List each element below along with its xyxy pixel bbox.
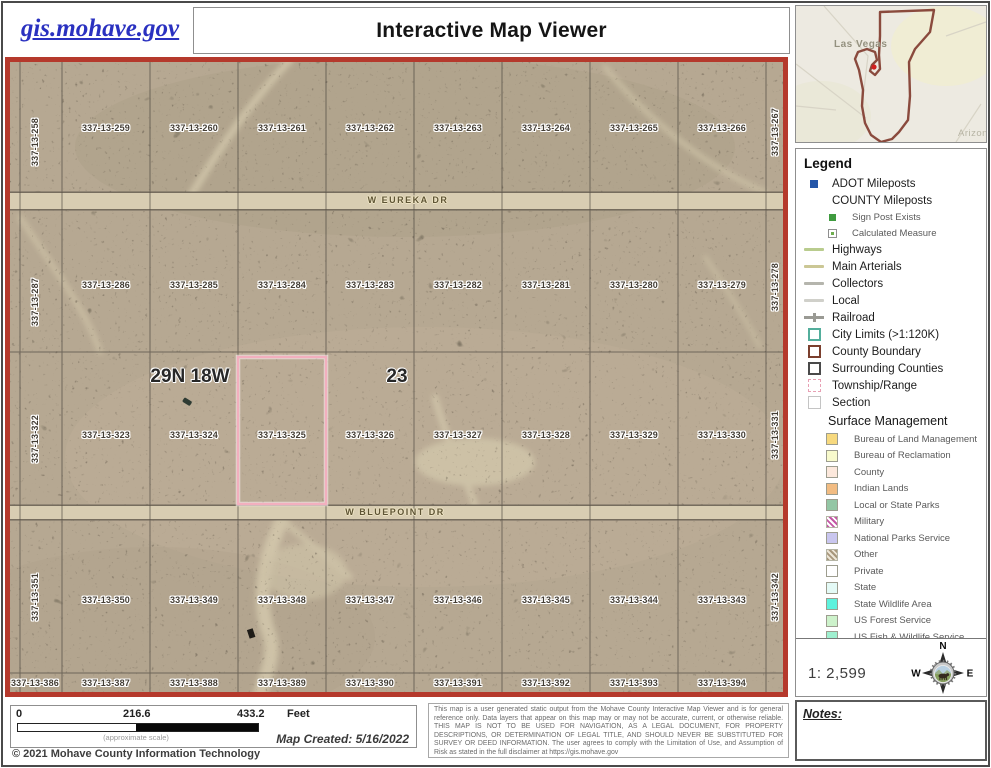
sign-post-icon [829, 214, 836, 221]
surrounding-counties-icon [808, 362, 821, 375]
legend-swatch-box [824, 450, 840, 462]
reclamation-swatch [826, 450, 838, 462]
county-swatch [826, 466, 838, 478]
legend-item-label: Highways [832, 244, 882, 256]
legend-item: Railroad [802, 309, 980, 326]
overview-map-canvas [796, 6, 986, 142]
section-icon [808, 396, 821, 409]
legend-title: Legend [804, 156, 980, 171]
legend-swatch-box [802, 379, 826, 392]
collector-line-icon [804, 282, 824, 285]
legend-item-label: Local [832, 295, 860, 307]
wildlife-area-swatch [826, 598, 838, 610]
map-viewer-page: gis.mohave.gov Interactive Map Viewer [0, 0, 991, 768]
legend-item: Township/Range [802, 377, 980, 394]
other-swatch [826, 549, 838, 561]
legend-item: Local or State Parks [802, 497, 980, 514]
legend-item-label: Calculated Measure [852, 228, 937, 239]
legend-item-label: Railroad [832, 312, 875, 324]
legend-swatch-box [824, 615, 840, 627]
legend-swatch-box [802, 299, 826, 302]
legend-swatch-box [802, 345, 826, 358]
legend-swatch-box [824, 598, 840, 610]
legend-item: State [802, 580, 980, 597]
header-link-area: gis.mohave.gov [8, 6, 192, 52]
legend-item-list: ADOT MilepostsCOUNTY MilepostsSign Post … [802, 175, 980, 411]
legend-swatch-box [802, 265, 826, 268]
fish-wildlife-swatch [826, 631, 838, 638]
legend-swatch-box [802, 195, 826, 207]
disclaimer-panel: This map is a user generated static outp… [428, 703, 789, 758]
scale-tick: 433.2 [237, 708, 265, 720]
title-bar: Interactive Map Viewer [193, 7, 790, 54]
legend-item: Bureau of Land Management [802, 431, 980, 448]
legend-panel: Legend ADOT MilepostsCOUNTY MilepostsSig… [795, 148, 987, 697]
compass-east-label: E [967, 669, 974, 680]
legend-item-label: City Limits (>1:120K) [832, 329, 939, 341]
indian-lands-swatch [826, 483, 838, 495]
legend-item-label: State [854, 582, 876, 593]
legend-item: COUNTY Mileposts [802, 192, 980, 209]
scale-unit: Feet [287, 708, 310, 720]
copyright-text: © 2021 Mohave County Information Technol… [12, 748, 260, 760]
legend-cutoff-item: US Fish & Wildlife Service [802, 629, 980, 638]
legend-item: US Fish & Wildlife Service [802, 629, 980, 638]
legend-item: Other [802, 547, 980, 564]
legend-item: County Boundary [802, 343, 980, 360]
legend-swatch-box [824, 499, 840, 511]
overview-locator-map: Las Vegas Arizona [795, 5, 987, 143]
notes-label: Notes: [803, 707, 842, 721]
legend-item-label: Other [854, 549, 878, 560]
road-eureka [5, 192, 788, 210]
road-bluepoint [5, 505, 788, 520]
notes-panel: Notes: [795, 700, 987, 761]
legend-swatch-box [824, 229, 840, 238]
forest-service-swatch [826, 615, 838, 627]
location-marker [871, 64, 876, 69]
legend-swatch-box [802, 248, 826, 251]
legend-item-label: COUNTY Mileposts [832, 195, 932, 207]
calculated-measure-icon [828, 229, 837, 238]
overview-city-label: Las Vegas [834, 39, 887, 50]
legend-item: Section [802, 394, 980, 411]
parks-swatch [826, 499, 838, 511]
blm-swatch [826, 433, 838, 445]
compass-rose-icon: N E S W [910, 641, 976, 697]
map-created-date: Map Created: 5/16/2022 [276, 732, 409, 746]
legend-item-label: State Wildlife Area [854, 599, 932, 610]
legend-item: US Forest Service [802, 613, 980, 630]
legend-separator [796, 638, 986, 639]
legend-item: Bureau of Reclamation [802, 448, 980, 465]
legend-swatch-box [824, 516, 840, 528]
legend-item: Collectors [802, 275, 980, 292]
legend-swatch-box [824, 532, 840, 544]
map-viewport: 29N 18W 23 337-13-258337-13-259337-13-26… [5, 57, 788, 697]
scale-ratio: 1: 2,599 [808, 665, 866, 682]
scale-note: (approximate scale) [51, 733, 221, 742]
legend-item: National Parks Service [802, 530, 980, 547]
local-line-icon [804, 299, 824, 302]
city-limits-icon [808, 328, 821, 341]
legend-item-label: County [854, 467, 884, 478]
legend-item-label: US Fish & Wildlife Service [854, 632, 964, 638]
surface-management-title: Surface Management [828, 414, 980, 428]
legend-item-label: ADOT Mileposts [832, 178, 916, 190]
legend-item: Local [802, 292, 980, 309]
legend-item: Calculated Measure [802, 225, 980, 241]
adot-milepost-icon [810, 180, 818, 188]
legend-swatch-box [824, 565, 840, 577]
scale-bar [17, 723, 259, 732]
state-swatch [826, 582, 838, 594]
legend-swatch-box [824, 483, 840, 495]
legend-item-label: Township/Range [832, 380, 917, 392]
legend-item-label: Indian Lands [854, 483, 908, 494]
scale-tick: 0 [16, 708, 22, 720]
legend-item-label: Main Arterials [832, 261, 902, 273]
page-title: Interactive Map Viewer [376, 19, 606, 43]
nps-swatch [826, 532, 838, 544]
legend-item-label: Collectors [832, 278, 883, 290]
legend-item-label: Military [854, 516, 884, 527]
compass-north-label: N [939, 641, 946, 652]
legend-item-label: National Parks Service [854, 533, 950, 544]
legend-item: Sign Post Exists [802, 209, 980, 225]
legend-item: Indian Lands [802, 481, 980, 498]
legend-swatch-box [802, 328, 826, 341]
legend-item-label: Local or State Parks [854, 500, 940, 511]
legend-item-label: Sign Post Exists [852, 212, 921, 223]
legend-swatch-box [802, 180, 826, 188]
legend-item: County [802, 464, 980, 481]
satellite-map-canvas [5, 57, 788, 697]
township-range-icon [808, 379, 821, 392]
legend-item-label: Bureau of Reclamation [854, 450, 951, 461]
private-swatch [826, 565, 838, 577]
legend-item: Private [802, 563, 980, 580]
legend-item: ADOT Mileposts [802, 175, 980, 192]
legend-swatch-box [802, 396, 826, 409]
surface-management-list: Bureau of Land ManagementBureau of Recla… [802, 431, 980, 629]
compass-west-label: W [911, 669, 921, 680]
overview-state-label: Arizona [958, 128, 987, 139]
highway-line-icon [804, 248, 824, 251]
legend-swatch-box [824, 631, 840, 638]
scale-bar-panel: 0 216.6 433.2 Feet (approximate scale) M… [10, 705, 417, 748]
legend-item: Main Arterials [802, 258, 980, 275]
legend-swatch-box [802, 362, 826, 375]
legend-swatch-box [802, 316, 826, 319]
legend-swatch-box [802, 282, 826, 285]
compass-south-label: S [940, 696, 947, 697]
legend-item-label: Bureau of Land Management [854, 434, 977, 445]
legend-item: State Wildlife Area [802, 596, 980, 613]
legend-item: Surrounding Counties [802, 360, 980, 377]
county-boundary-icon [808, 345, 821, 358]
legend-item: Military [802, 514, 980, 531]
site-link[interactable]: gis.mohave.gov [21, 15, 179, 43]
legend-item-label: Section [832, 397, 870, 409]
legend-swatch-box [824, 582, 840, 594]
legend-item-label: US Forest Service [854, 615, 931, 626]
legend-item: City Limits (>1:120K) [802, 326, 980, 343]
legend-item-label: Private [854, 566, 884, 577]
railroad-line-icon [804, 316, 824, 319]
legend-swatch-box [824, 433, 840, 445]
military-swatch [826, 516, 838, 528]
legend-swatch-box [824, 214, 840, 221]
scale-ratio-row: 1: 2,599 N [802, 641, 980, 697]
legend-item: Highways [802, 241, 980, 258]
legend-swatch-box [824, 466, 840, 478]
legend-item-label: Surrounding Counties [832, 363, 943, 375]
legend-swatch-box [824, 549, 840, 561]
legend-item-label: County Boundary [832, 346, 921, 358]
arterial-line-icon [804, 265, 824, 268]
scale-tick: 216.6 [123, 708, 151, 720]
